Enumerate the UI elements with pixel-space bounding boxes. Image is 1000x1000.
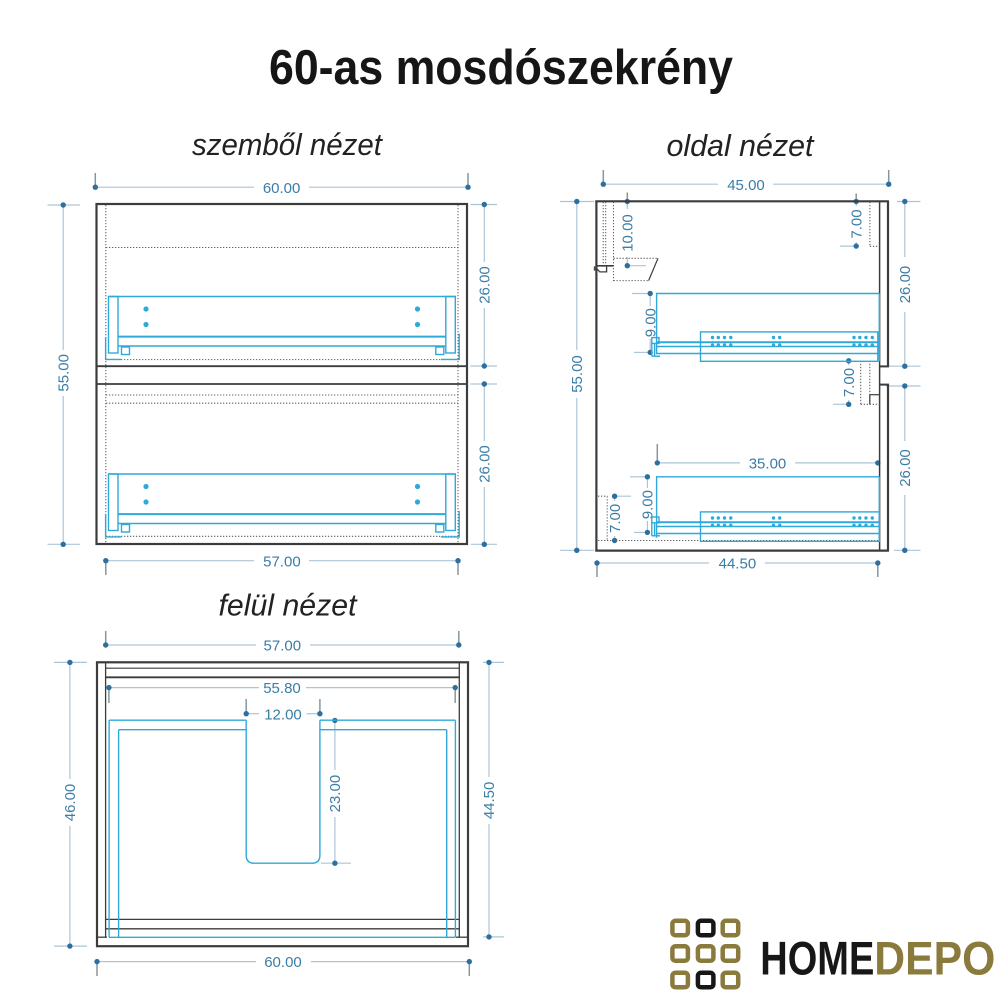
svg-text:60.00: 60.00	[264, 954, 302, 971]
svg-text:7.00: 7.00	[848, 209, 865, 238]
svg-text:oldal nézet: oldal nézet	[667, 128, 815, 163]
svg-text:felül nézet: felül nézet	[219, 588, 358, 623]
svg-text:HOME: HOME	[760, 933, 874, 986]
svg-text:44.50: 44.50	[719, 556, 757, 573]
svg-text:23.00: 23.00	[327, 775, 344, 813]
svg-text:DEPO: DEPO	[874, 933, 995, 986]
svg-text:44.50: 44.50	[481, 782, 498, 820]
svg-text:60-as mosdószekrény: 60-as mosdószekrény	[269, 41, 733, 95]
svg-text:55.80: 55.80	[263, 680, 301, 697]
svg-text:35.00: 35.00	[749, 456, 787, 473]
svg-text:12.00: 12.00	[264, 706, 302, 723]
svg-text:szemből nézet: szemből nézet	[192, 127, 383, 162]
svg-text:45.00: 45.00	[727, 177, 765, 194]
svg-text:60.00: 60.00	[263, 180, 301, 197]
svg-text:46.00: 46.00	[62, 784, 79, 822]
svg-text:57.00: 57.00	[263, 553, 301, 570]
svg-text:55.00: 55.00	[569, 355, 586, 393]
svg-text:7.00: 7.00	[607, 504, 624, 533]
svg-text:26.00: 26.00	[477, 445, 494, 483]
svg-text:9.00: 9.00	[640, 490, 657, 519]
svg-text:55.00: 55.00	[55, 354, 72, 392]
svg-text:26.00: 26.00	[477, 266, 494, 304]
svg-text:7.00: 7.00	[841, 368, 858, 397]
svg-text:26.00: 26.00	[897, 266, 914, 304]
svg-text:10.00: 10.00	[620, 214, 637, 252]
svg-text:26.00: 26.00	[897, 449, 914, 487]
svg-text:57.00: 57.00	[264, 638, 302, 655]
